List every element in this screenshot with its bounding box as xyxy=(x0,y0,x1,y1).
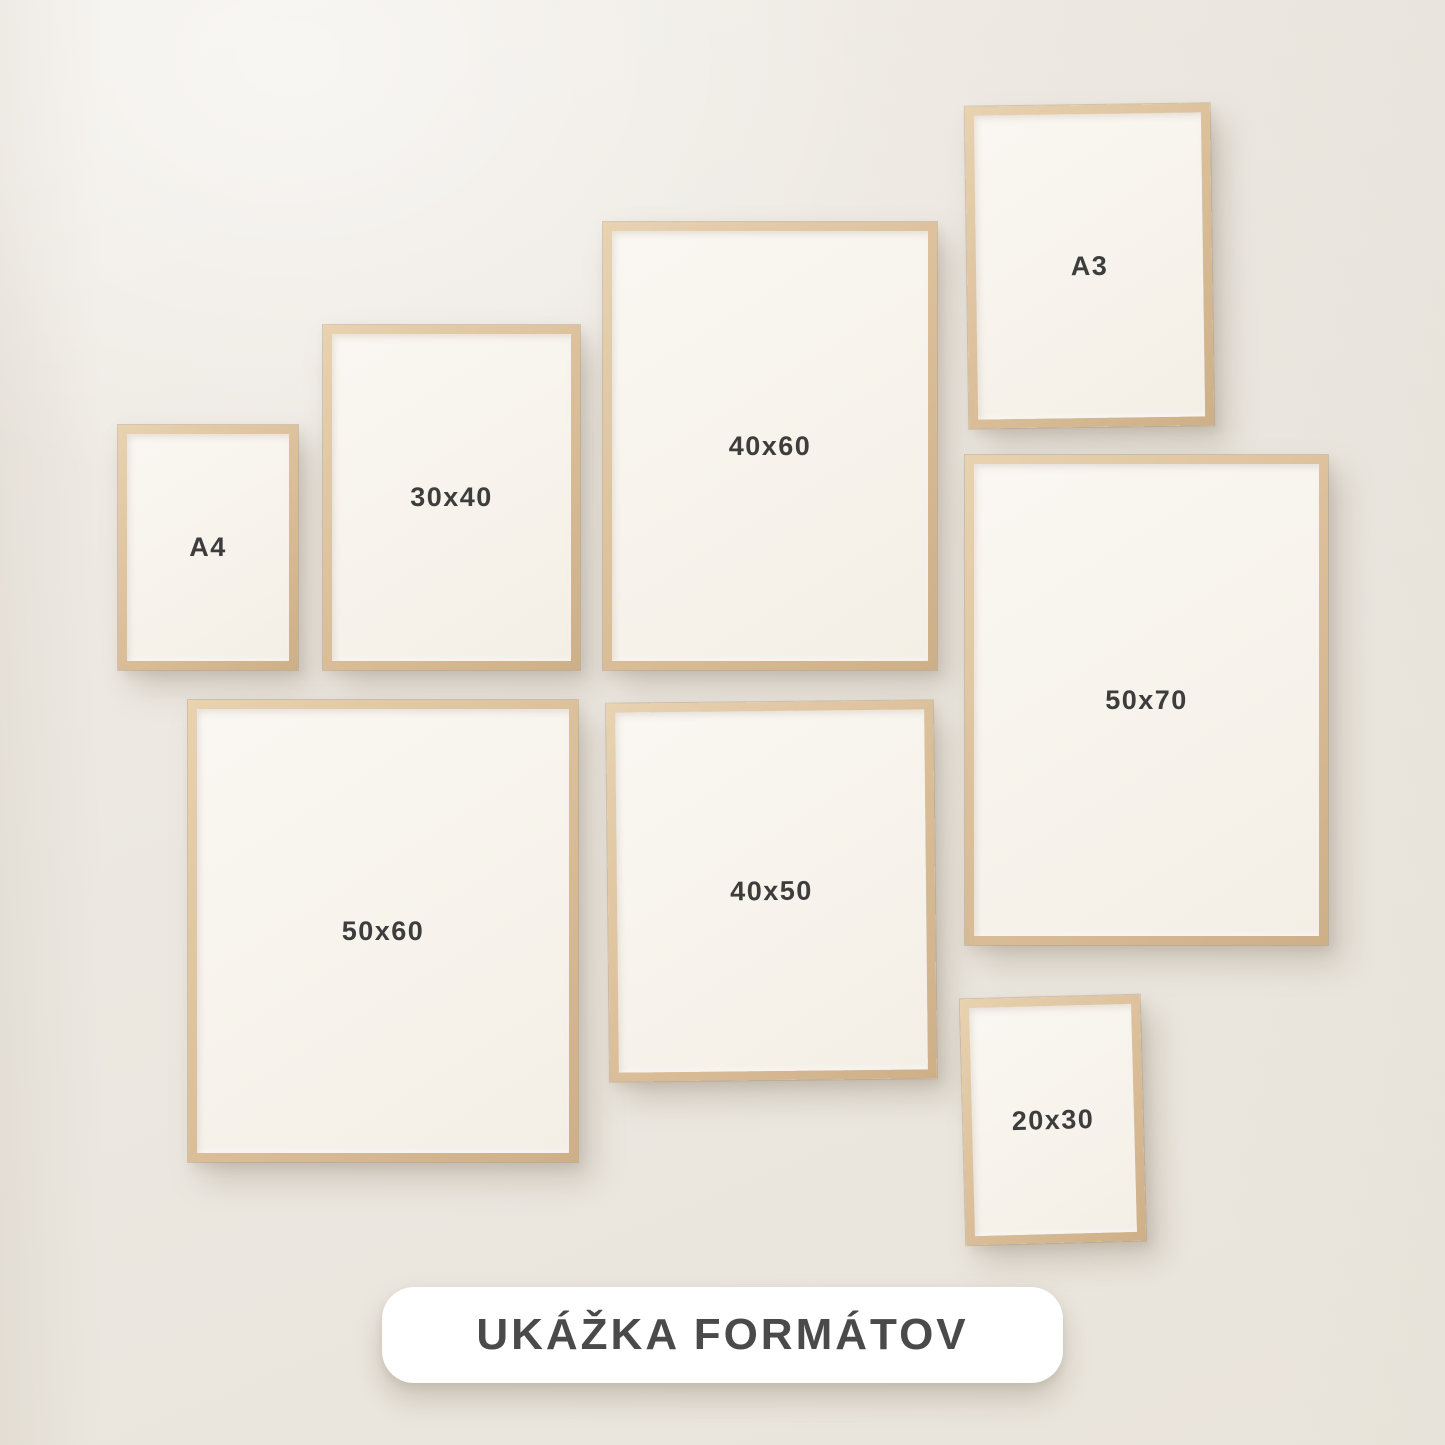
frame-40x60: 40x60 xyxy=(603,222,937,670)
frame-20x30-paper: 20x30 xyxy=(969,1004,1137,1236)
frame-20x30: 20x30 xyxy=(960,995,1146,1246)
frame-30x40-paper: 30x40 xyxy=(332,334,571,661)
size-label-40x50: 40x50 xyxy=(730,875,813,907)
size-label-30x40: 30x40 xyxy=(410,482,493,513)
size-label-40x60: 40x60 xyxy=(729,431,812,462)
frame-50x60-paper: 50x60 xyxy=(197,709,569,1153)
size-label-50x60: 50x60 xyxy=(342,916,425,947)
frame-a4: A4 xyxy=(118,425,298,670)
size-label-a3: A3 xyxy=(1071,250,1109,282)
frame-50x70-paper: 50x70 xyxy=(974,464,1319,936)
frame-40x50-paper: 40x50 xyxy=(615,709,928,1072)
frame-a3-paper: A3 xyxy=(974,112,1205,419)
frame-30x40: 30x40 xyxy=(323,325,580,670)
frame-a4-paper: A4 xyxy=(127,434,289,661)
frame-40x60-paper: 40x60 xyxy=(612,231,928,661)
formats-banner-label: UKÁŽKA FORMÁTOV xyxy=(476,1310,968,1360)
frame-50x60: 50x60 xyxy=(188,700,578,1162)
frame-40x50: 40x50 xyxy=(606,700,937,1081)
size-label-a4: A4 xyxy=(189,532,227,563)
size-label-50x70: 50x70 xyxy=(1105,685,1188,716)
frame-a3: A3 xyxy=(965,103,1214,428)
size-label-20x30: 20x30 xyxy=(1011,1103,1094,1136)
formats-banner: UKÁŽKA FORMÁTOV xyxy=(382,1287,1063,1383)
gallery-wall: A4 30x40 40x60 A3 50x70 50x60 40x50 20x xyxy=(0,0,1445,1445)
frame-50x70: 50x70 xyxy=(965,455,1328,945)
